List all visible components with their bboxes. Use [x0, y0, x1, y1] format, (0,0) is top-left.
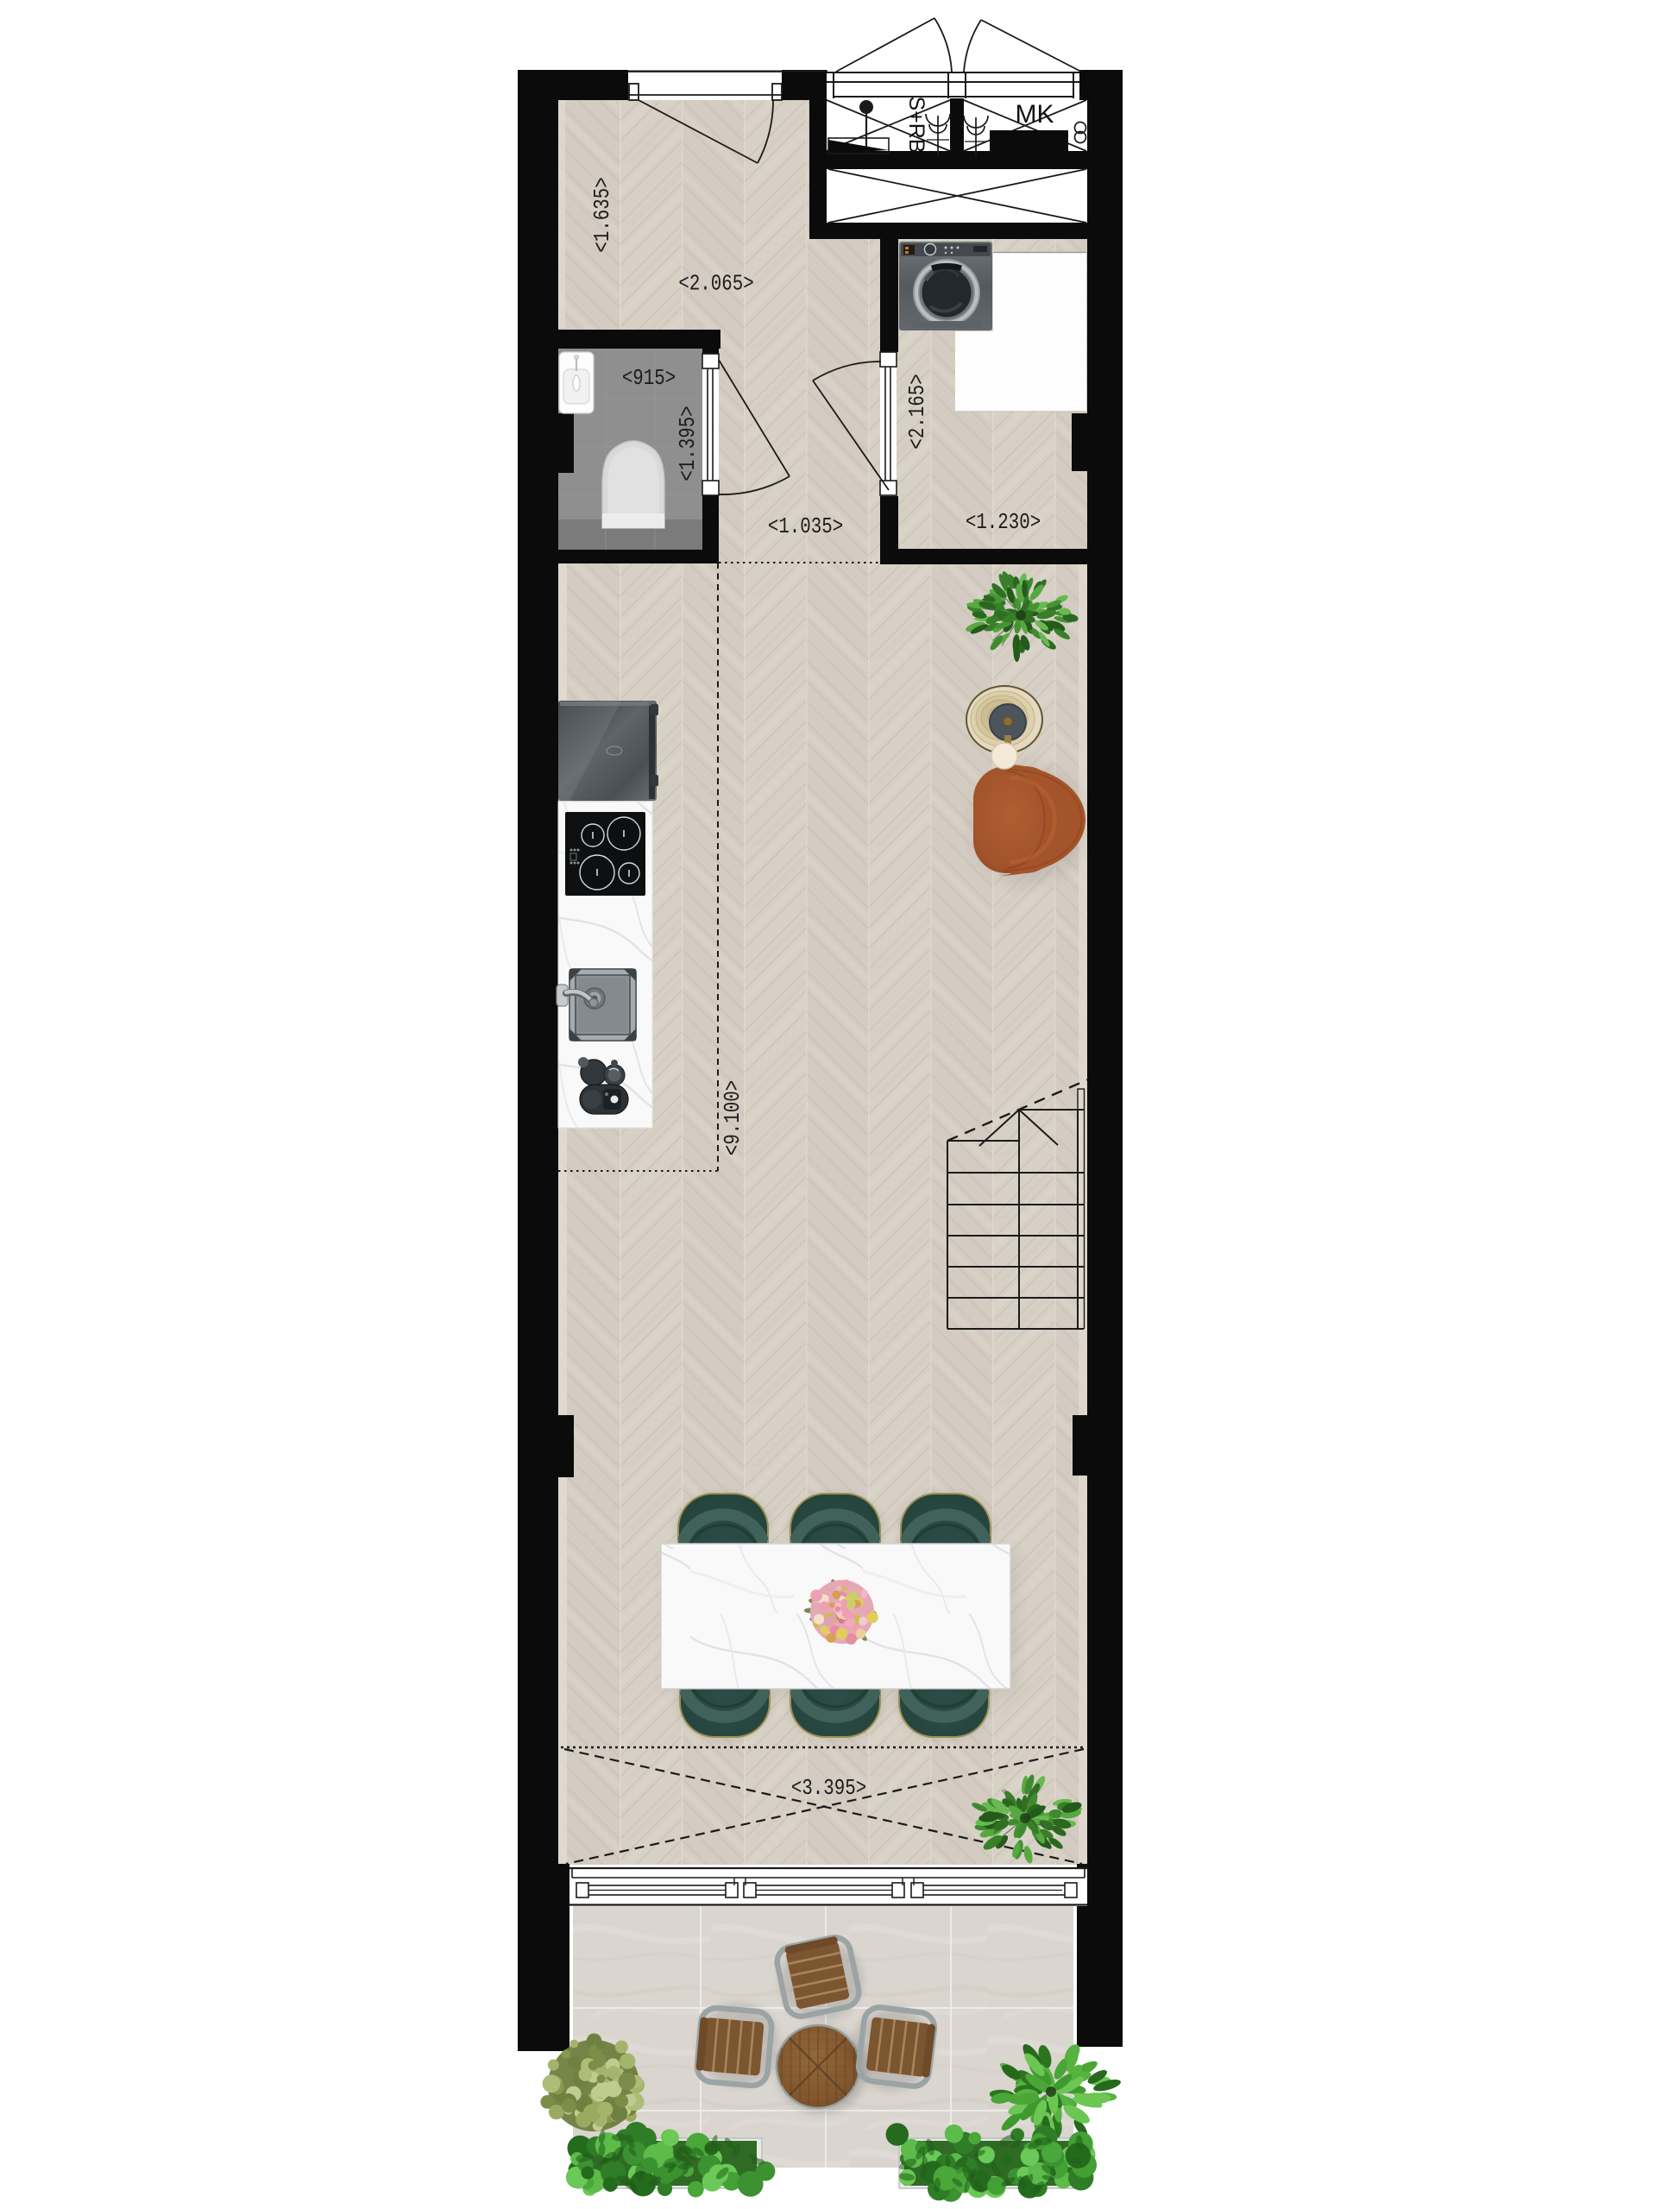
svg-text:<1.230>: <1.230>	[966, 510, 1041, 536]
svg-text:<2.065>: <2.065>	[678, 272, 753, 298]
svg-text:MK: MK	[1016, 100, 1054, 129]
svg-text:<1.035>: <1.035>	[768, 514, 843, 540]
svg-text:<3.395>: <3.395>	[791, 1776, 866, 1802]
svg-text:<2.165>: <2.165>	[905, 374, 931, 449]
svg-text:<1.635>: <1.635>	[590, 177, 616, 252]
svg-text:<9.100>: <9.100>	[720, 1080, 746, 1155]
svg-text:<1.395>: <1.395>	[676, 406, 702, 481]
svg-text:S+RB: S+RB	[904, 96, 928, 153]
svg-text:<915>: <915>	[622, 366, 676, 392]
